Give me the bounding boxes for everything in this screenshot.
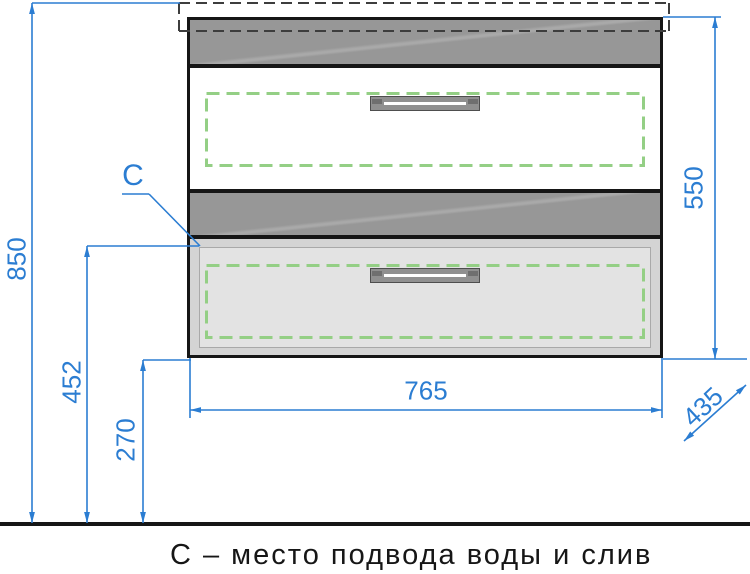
dim-value-floor-clearance: 270 — [111, 418, 142, 461]
drawer-clearance-zones — [207, 94, 644, 338]
vanity-cabinet-technical-drawing: 850 452 270 550 765 435 С С – место подв… — [0, 0, 750, 574]
drawer-1-handle — [370, 96, 480, 111]
connection-leader-line — [122, 194, 200, 246]
dim-value-overall-height: 850 — [2, 237, 33, 280]
countertop-dashed-outline — [179, 3, 669, 31]
dim-line-270 — [143, 360, 191, 523]
drawer-2-handle — [370, 268, 480, 283]
handle-end-cap — [468, 99, 478, 104]
connection-point-label: С — [122, 159, 144, 193]
handle-end-cap — [372, 271, 382, 276]
handle-end-cap — [468, 271, 478, 276]
handle-end-cap — [372, 99, 382, 104]
dimension-layer — [0, 0, 750, 574]
dim-value-connection-height: 452 — [57, 360, 88, 403]
handle-slot — [384, 102, 466, 105]
caption: С – место подвода воды и слив — [170, 539, 652, 572]
dim-value-cabinet-width: 765 — [404, 376, 447, 407]
dim-line-850 — [32, 3, 180, 523]
dim-value-cabinet-height: 550 — [679, 166, 710, 209]
handle-slot — [384, 274, 466, 277]
